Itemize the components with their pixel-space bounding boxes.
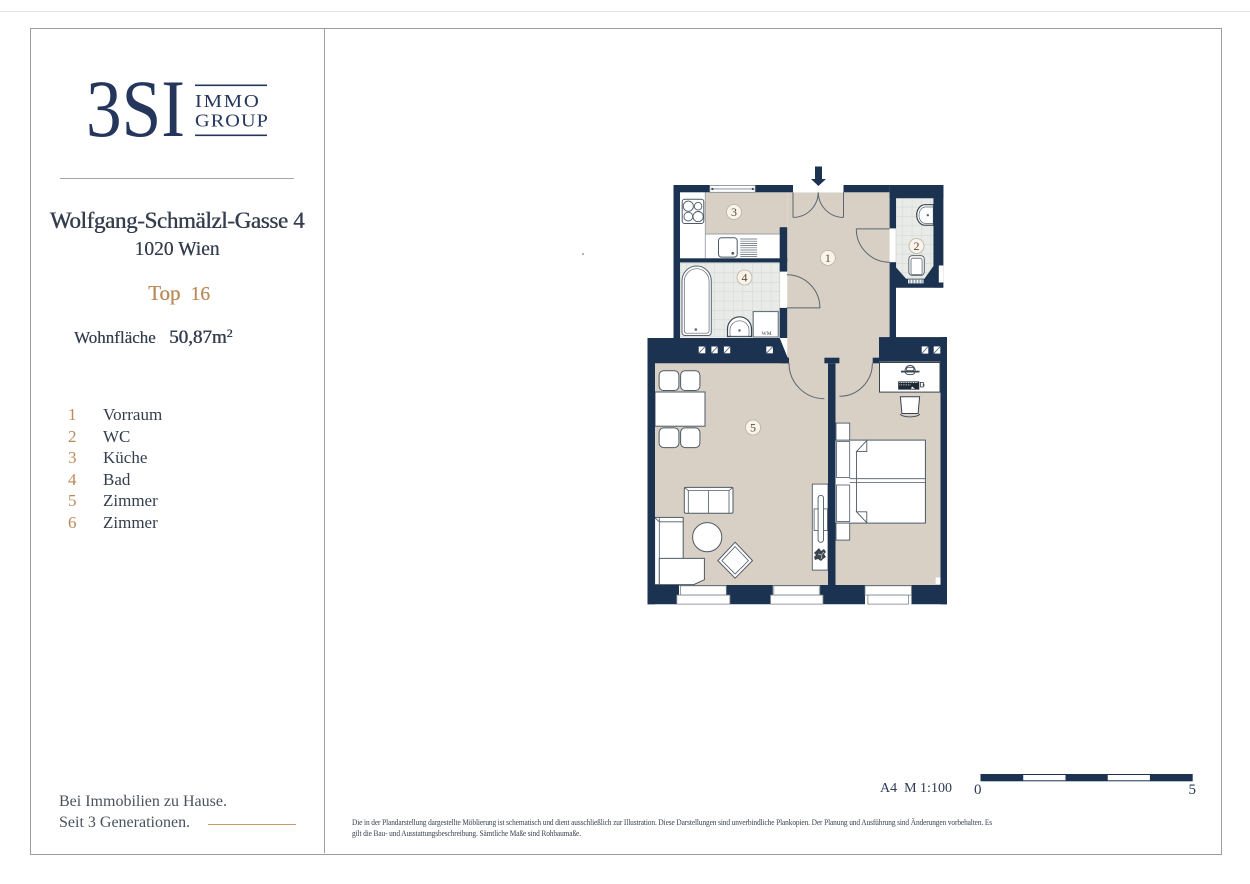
svg-text:4: 4 [742,271,748,285]
svg-text:1: 1 [825,251,831,265]
svg-text:3: 3 [731,205,737,219]
svg-text:2: 2 [914,239,920,253]
svg-text:WM: WM [762,331,772,337]
svg-text:5: 5 [750,421,756,435]
